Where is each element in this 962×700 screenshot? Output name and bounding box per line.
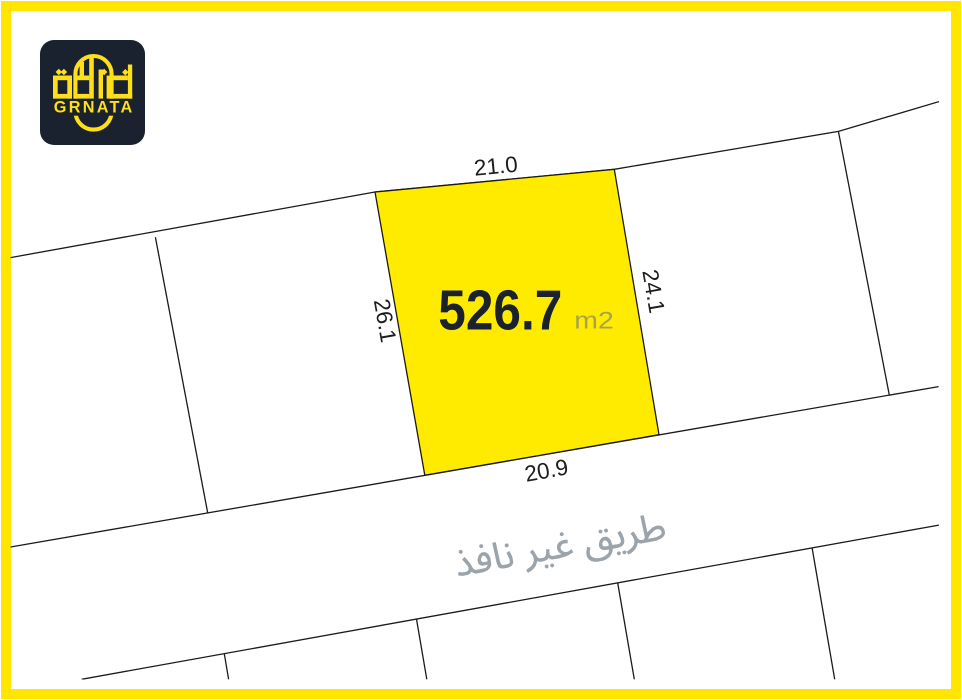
svg-text:21.0: 21.0 [473,152,519,181]
svg-text:526.7: 526.7 [438,279,562,343]
svg-text:m2: m2 [574,308,614,335]
svg-text:GRNATA: GRNATA [54,99,133,117]
